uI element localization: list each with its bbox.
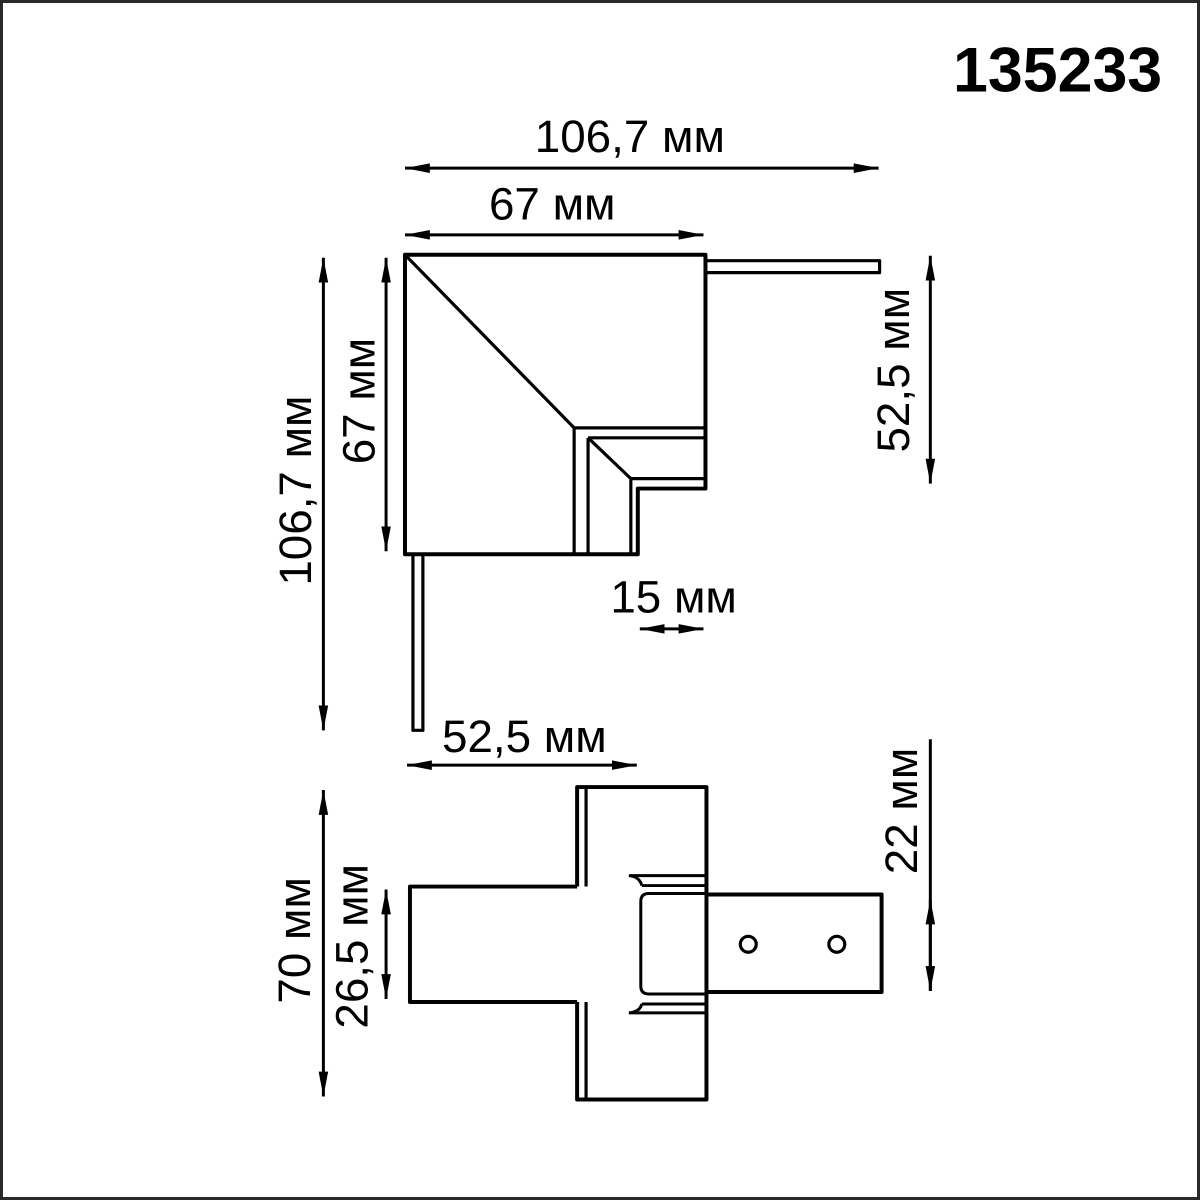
busbar-hole-left: [740, 936, 756, 952]
bottom-view-left-track-arm: [410, 887, 577, 1002]
top-view-right-busbar: [705, 261, 879, 273]
busbar-hole-right: [829, 936, 845, 952]
dim-label-bottom-connector: 52,5 мм: [442, 711, 607, 762]
dim-label-body-width: 67 мм: [489, 178, 616, 229]
dim-label-total-height: 106,7 мм: [270, 395, 321, 585]
dim-label-busbar-height: 22 мм: [876, 748, 927, 875]
dim-label-total-width: 106,7 мм: [535, 111, 725, 162]
top-view-bottom-busbar: [413, 554, 423, 730]
bottom-view: [323, 739, 930, 1099]
dim-label-right-connector: 52,5 мм: [868, 288, 919, 453]
bottom-view-junction-steps: [629, 876, 706, 1013]
top-view-diagonal-seam: [405, 255, 574, 428]
bottom-view-right-busbar: [706, 895, 881, 993]
dim-label-step-width: 15 мм: [610, 572, 737, 623]
top-view: [323, 168, 930, 765]
article-number: 135233: [953, 36, 1162, 106]
dim-label-track-height: 26,5 мм: [327, 864, 378, 1029]
dim-label-body-height: 67 мм: [334, 338, 385, 465]
drawing-svg: 135233 106,7 мм 67 мм 106,7 мм 67 мм 52,…: [3, 3, 1197, 1197]
drawing-sheet: 135233 106,7 мм 67 мм 106,7 мм 67 мм 52,…: [0, 0, 1200, 1200]
dim-label-bottom-body-height: 70 мм: [269, 877, 320, 1004]
